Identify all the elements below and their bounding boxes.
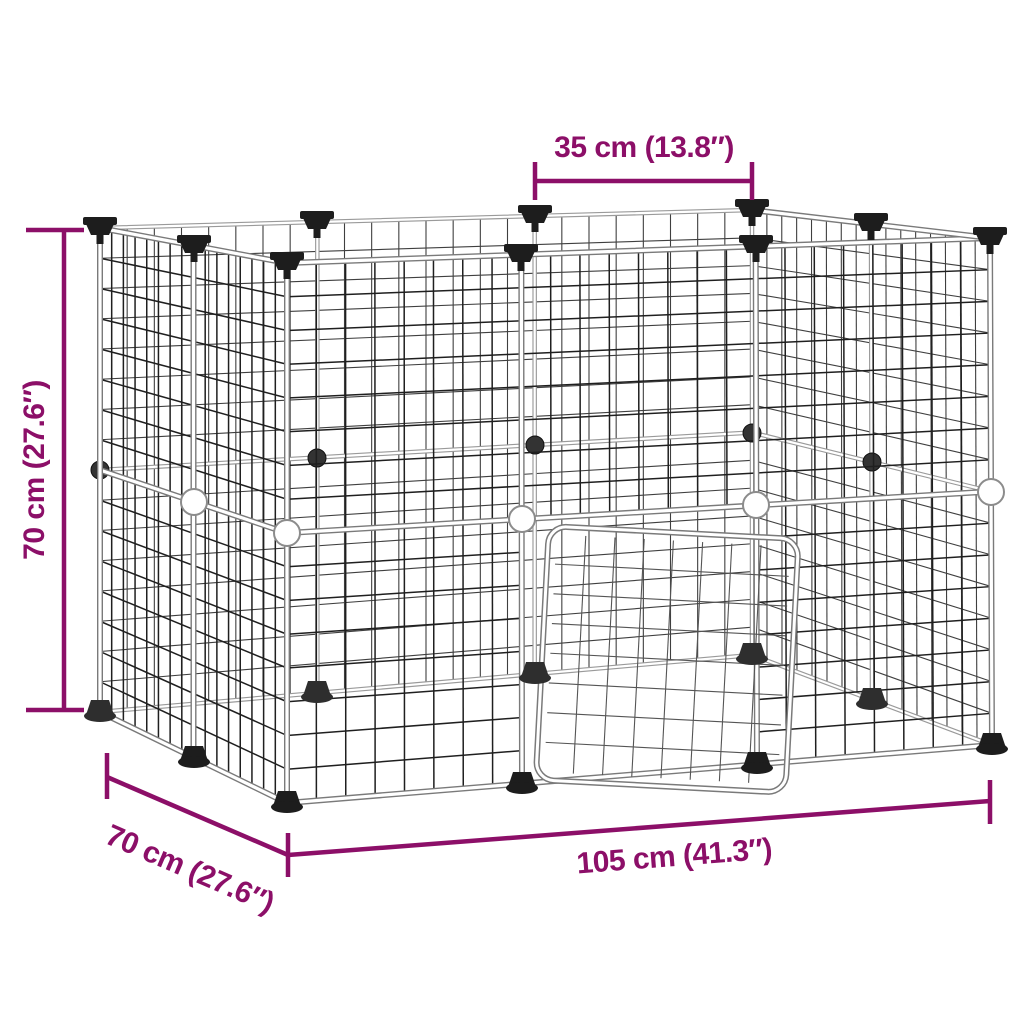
cage-frame-tubes [100, 210, 992, 803]
cage-feet [84, 643, 1008, 813]
dimension-height: 70 cm (27.6″) [18, 230, 84, 710]
dimension-label-length: 105 cm (41.3″) [575, 833, 773, 881]
pet-playpen-dimension-diagram: 35 cm (13.8″) 70 cm (27.6″) 70 cm (27.6″… [0, 0, 1024, 1024]
dimension-label-height: 70 cm (27.6″) [18, 380, 51, 560]
dimension-label-top-width: 35 cm (13.8″) [554, 131, 734, 164]
dimension-depth: 70 cm (27.6″) [101, 753, 288, 920]
cage-back-mesh [100, 210, 752, 712]
cage-far-connectors [91, 424, 881, 479]
cage-top-clamps [83, 199, 1007, 279]
dimension-label-depth: 70 cm (27.6″) [101, 819, 279, 920]
dimension-top-width: 35 cm (13.8″) [535, 131, 752, 200]
